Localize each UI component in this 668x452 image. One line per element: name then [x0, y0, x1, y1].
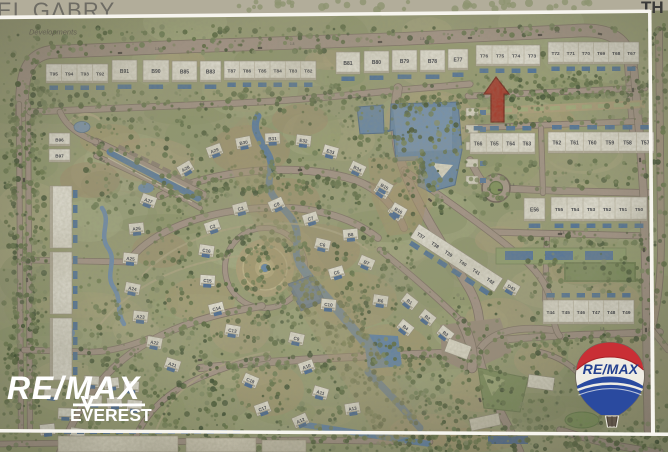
svg-text:EL GΛBRY: EL GΛBRY — [0, 0, 115, 23]
svg-text:TH: TH — [641, 0, 664, 17]
svg-text:EVEREST: EVEREST — [70, 405, 152, 425]
svg-text:RE/MAX: RE/MAX — [7, 370, 141, 406]
svg-text:RE/MAX: RE/MAX — [583, 361, 640, 377]
svg-text:Developments: Developments — [29, 28, 77, 37]
